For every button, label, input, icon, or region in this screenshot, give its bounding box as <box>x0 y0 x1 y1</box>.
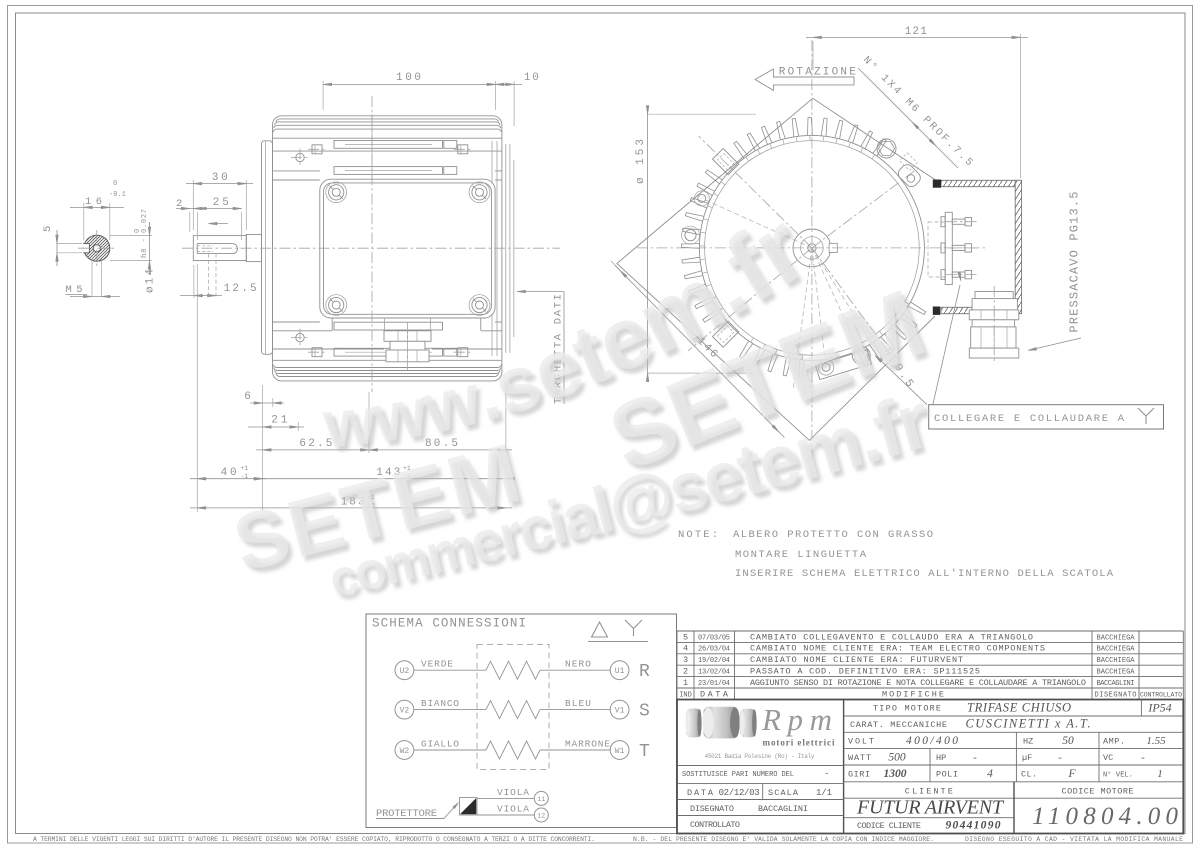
svg-text:BACCHIEGA: BACCHIEGA <box>1097 634 1136 642</box>
svg-text:MODIFICHE: MODIFICHE <box>882 689 944 699</box>
svg-text:6: 6 <box>244 391 251 403</box>
svg-text:W2: W2 <box>400 747 410 756</box>
svg-text:N° VEL.: N° VEL. <box>1103 771 1133 780</box>
svg-text:DISEGNO ESEGUITO A CAD - VIETA: DISEGNO ESEGUITO A CAD - VIETATA LA MODI… <box>965 836 1183 843</box>
svg-text:VOLT: VOLT <box>848 737 874 747</box>
svg-text:+1: +1 <box>241 465 249 472</box>
svg-text:HZ: HZ <box>1023 737 1033 747</box>
svg-text:4: 4 <box>683 644 688 654</box>
svg-text:VC: VC <box>1103 753 1113 763</box>
svg-text:10: 10 <box>524 72 539 84</box>
svg-text:0.027: 0.027 <box>141 209 149 233</box>
svg-text:-: - <box>824 769 829 779</box>
svg-text:-1: -1 <box>241 473 249 480</box>
svg-text:ø14: ø14 <box>145 269 157 293</box>
svg-text:TRIFASE CHIUSO: TRIFASE CHIUSO <box>967 701 1071 715</box>
svg-text:CUSCINETTI x A.T.: CUSCINETTI x A.T. <box>966 717 1091 731</box>
svg-text:12: 12 <box>537 813 545 820</box>
svg-text:TIPO MOTORE: TIPO MOTORE <box>873 704 941 714</box>
svg-text:5: 5 <box>42 226 54 232</box>
svg-text:07/03/05: 07/03/05 <box>698 634 730 642</box>
svg-text:23/01/04: 23/01/04 <box>698 680 730 688</box>
svg-text:DISEGNATO: DISEGNATO <box>1095 691 1137 699</box>
svg-text:PRESSACAVO PG13.5: PRESSACAVO PG13.5 <box>1068 192 1082 333</box>
svg-text:100: 100 <box>396 72 421 84</box>
svg-text:U2: U2 <box>400 667 410 676</box>
svg-text:VIOLA: VIOLA <box>497 804 529 815</box>
svg-text:BACCHIEGA: BACCHIEGA <box>1097 646 1136 654</box>
svg-text:2: 2 <box>176 198 182 210</box>
svg-text:IND: IND <box>679 691 692 699</box>
svg-text:SOSTITUISCE PARI NUMERO DEL: SOSTITUISCE PARI NUMERO DEL <box>682 771 794 779</box>
svg-text:26/03/04: 26/03/04 <box>698 646 730 654</box>
svg-text:3: 3 <box>683 655 688 665</box>
svg-text:CL.: CL. <box>1021 770 1037 780</box>
svg-text:PASSATO A COD. DEFINITIVO ERA:: PASSATO A COD. DEFINITIVO ERA: SP111525 <box>750 667 980 677</box>
svg-text:0: 0 <box>113 180 117 188</box>
svg-text:CLIENTE: CLIENTE <box>905 787 953 797</box>
svg-text:4: 4 <box>987 768 993 780</box>
svg-text:V1: V1 <box>615 707 625 716</box>
svg-text:DATA: DATA <box>700 689 729 699</box>
svg-text:BACCHIEGA: BACCHIEGA <box>1097 657 1136 665</box>
svg-text:DISEGNATO: DISEGNATO <box>690 804 734 814</box>
svg-text:CAMBIATO COLLEGAVENTO E COLLAU: CAMBIATO COLLEGAVENTO E COLLAUDO ERA A T… <box>750 632 1033 642</box>
svg-text:CAMBIATO NOME CLIENTE ERA: FUT: CAMBIATO NOME CLIENTE ERA: FUTURVENT <box>750 655 963 665</box>
svg-text:110804.00: 110804.00 <box>1032 803 1179 830</box>
svg-text:BLEU: BLEU <box>565 698 591 709</box>
svg-text:A TERMINI DELLE VIGENTI LEGGI: A TERMINI DELLE VIGENTI LEGGI SUI DIRITT… <box>33 836 595 843</box>
svg-text:2: 2 <box>683 667 688 677</box>
svg-text:90441090: 90441090 <box>946 820 1001 832</box>
svg-text:T: T <box>639 742 650 762</box>
svg-text:BACCHIEGA: BACCHIEGA <box>1097 669 1136 677</box>
svg-text:Rpm: Rpm <box>761 702 832 737</box>
svg-text:POLI: POLI <box>936 770 958 780</box>
svg-text:U1: U1 <box>615 667 625 676</box>
svg-text:CONTROLLATO: CONTROLLATO <box>1140 691 1182 698</box>
svg-text:WATT: WATT <box>848 753 871 763</box>
svg-text:-: - <box>1141 752 1145 764</box>
svg-text:1300: 1300 <box>884 768 907 780</box>
svg-text:02/12/03: 02/12/03 <box>719 788 760 798</box>
svg-text:GIALLO: GIALLO <box>421 739 459 750</box>
svg-text:-0.1: -0.1 <box>109 191 126 199</box>
svg-text:1: 1 <box>1157 768 1163 780</box>
svg-text:FUTUR AIRVENT: FUTUR AIRVENT <box>856 797 1005 819</box>
svg-text:MARRONE: MARRONE <box>565 739 610 750</box>
svg-text:19/02/04: 19/02/04 <box>698 657 730 665</box>
svg-text:CODICE CLIENTE: CODICE CLIENTE <box>857 821 921 831</box>
svg-text:IP54: IP54 <box>1147 701 1171 715</box>
svg-text:COLLEGARE E COLLAUDARE A: COLLEGARE E COLLAUDARE A <box>934 413 1125 425</box>
svg-text:INSERIRE SCHEMA ELETTRICO ALL': INSERIRE SCHEMA ELETTRICO ALL'INTERNO DE… <box>735 568 1114 580</box>
svg-text:VERDE: VERDE <box>421 659 453 670</box>
svg-text:CARAT. MECCANICHE: CARAT. MECCANICHE <box>850 720 947 730</box>
svg-text:SCHEMA CONNESSIONI: SCHEMA CONNESSIONI <box>372 617 526 631</box>
svg-text:1/1: 1/1 <box>816 788 832 798</box>
svg-text:-: - <box>1058 752 1062 764</box>
svg-text:500: 500 <box>888 752 906 764</box>
svg-text:CONTROLLATO: CONTROLLATO <box>690 820 740 830</box>
svg-text:HP: HP <box>936 753 946 763</box>
svg-text:W1: W1 <box>615 747 625 756</box>
svg-text:F: F <box>1067 768 1076 780</box>
svg-text:CODICE MOTORE: CODICE MOTORE <box>1062 787 1134 797</box>
svg-text:BACCAGLINI: BACCAGLINI <box>758 804 808 814</box>
svg-text:50: 50 <box>1062 735 1074 747</box>
svg-text:V2: V2 <box>400 707 410 716</box>
svg-text:AMP.: AMP. <box>1103 737 1125 747</box>
svg-text:VIOLA: VIOLA <box>497 787 529 798</box>
svg-text:45021 Badia Polesine (Ro) - It: 45021 Badia Polesine (Ro) - Italy <box>705 753 815 760</box>
svg-text:motori elettrici: motori elettrici <box>763 738 835 748</box>
svg-text:121: 121 <box>905 26 927 38</box>
svg-text:5: 5 <box>683 632 688 642</box>
svg-text:AGGIUNTO SENSO DI ROTAZIONE E: AGGIUNTO SENSO DI ROTAZIONE E NOTA COLLE… <box>750 678 1086 688</box>
svg-text:SCALA: SCALA <box>768 788 799 798</box>
svg-text:DATA: DATA <box>687 788 714 798</box>
svg-text:1.55: 1.55 <box>1146 735 1166 747</box>
svg-text:13/02/04: 13/02/04 <box>698 669 730 677</box>
svg-text:ALBERO PROTETTO CON GRASSO: ALBERO PROTETTO CON GRASSO <box>733 529 933 541</box>
svg-text:CAMBIATO NOME CLIENTE ERA: TEA: CAMBIATO NOME CLIENTE ERA: TEAM ELECTRO … <box>750 644 1045 654</box>
svg-text:-: - <box>973 752 977 764</box>
svg-text:11: 11 <box>537 796 545 803</box>
svg-text:BACCAGLINI: BACCAGLINI <box>1097 680 1135 688</box>
svg-text:µF: µF <box>1022 753 1032 763</box>
svg-text:R: R <box>639 662 650 682</box>
svg-text:NERO: NERO <box>565 659 591 670</box>
svg-text:1: 1 <box>683 678 688 688</box>
svg-text:BIANCO: BIANCO <box>421 698 459 709</box>
svg-text:S: S <box>639 702 650 722</box>
svg-text:MONTARE LINGUETTA: MONTARE LINGUETTA <box>735 549 867 561</box>
svg-text:GIRI: GIRI <box>848 770 870 780</box>
svg-text:N.B. - DEL PRESENTE DISEGNO E': N.B. - DEL PRESENTE DISEGNO E' VALIDA SO… <box>633 836 934 843</box>
svg-text:h8 -: h8 - <box>141 238 149 258</box>
